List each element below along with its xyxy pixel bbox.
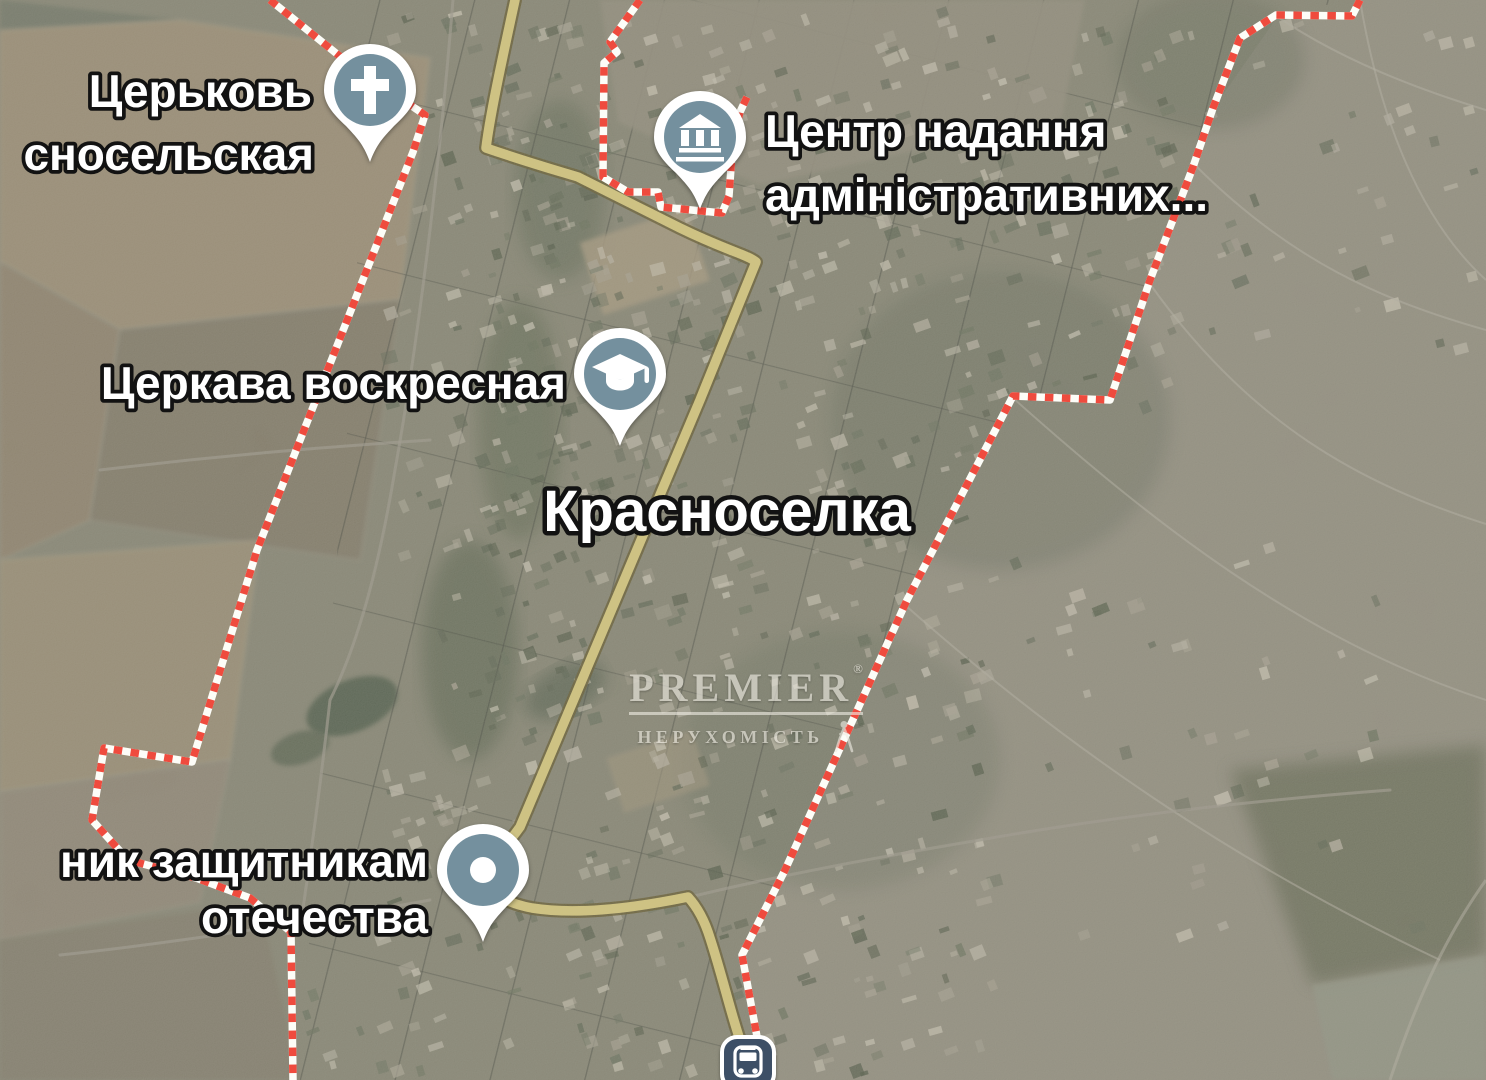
label-church-krasnoselskaya-line2[interactable]: сносельская (23, 128, 314, 180)
watermark-subtitle: НЕРУХОМІСТЬ (603, 720, 889, 754)
registered-trademark-icon: ® (853, 661, 863, 676)
watermark-subtitle-text: НЕРУХОМІСТЬ (637, 727, 823, 748)
watermark-brand: PREMIER® (603, 662, 889, 709)
label-town-krasnoselka[interactable]: Красноселка (543, 479, 911, 544)
label-church-krasnoselskaya-line1[interactable]: Церьковь (89, 65, 312, 117)
label-monument-line2[interactable]: отечества (201, 891, 428, 943)
church-voskresnaya-pin[interactable] (570, 327, 670, 452)
watermark-divider (629, 712, 863, 715)
label-monument-line1[interactable]: ник защитникам (60, 835, 428, 887)
satellite-map-canvas[interactable]: Церьковь сносельская Центр надання адмін… (0, 0, 1486, 1080)
watermark-brand-text: PREMIER (629, 665, 853, 710)
church-krasnoselskaya-pin[interactable] (320, 43, 420, 168)
monument-pin[interactable] (433, 823, 533, 948)
admin-center-pin[interactable] (650, 90, 750, 215)
label-admin-center-line1[interactable]: Центр надання (765, 105, 1107, 157)
label-church-voskresnaya[interactable]: Церкава воскресная (101, 357, 566, 409)
bus-stop-icon[interactable] (720, 1035, 776, 1080)
dot-icon (470, 857, 496, 883)
premier-watermark: PREMIER® НЕРУХОМІСТЬ (603, 662, 889, 754)
label-admin-center-line2[interactable]: адміністративних... (765, 169, 1208, 221)
bus-icon (727, 1042, 769, 1080)
walking-person-icon (833, 720, 855, 754)
